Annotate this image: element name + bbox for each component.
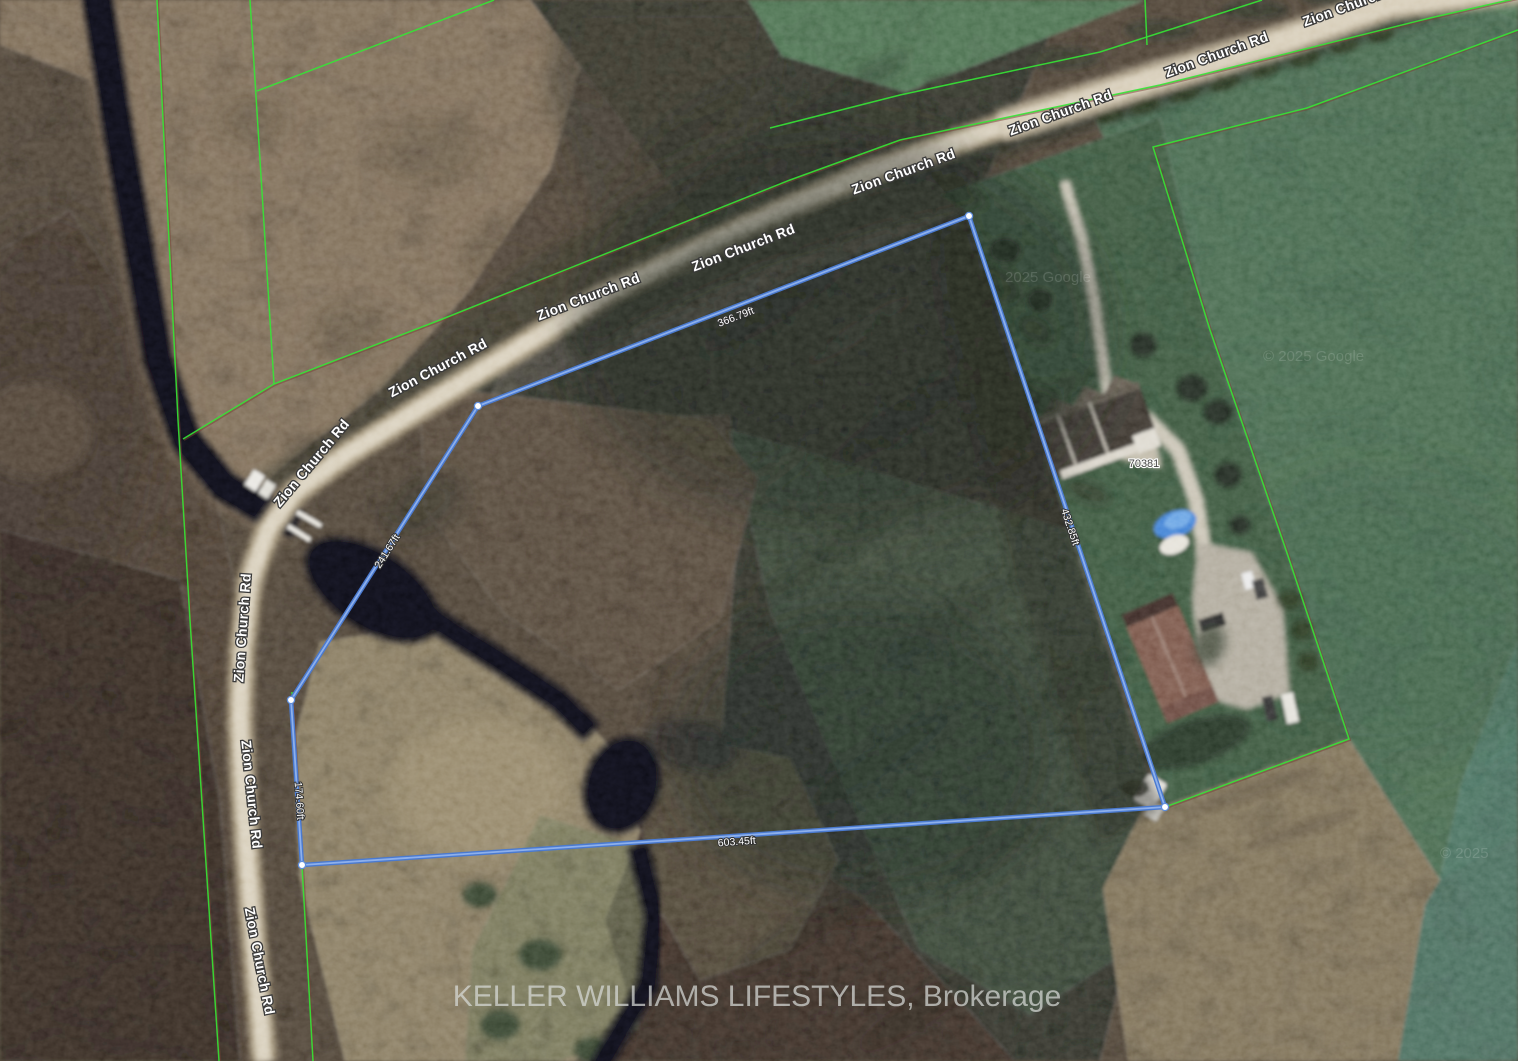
svg-text:KELLER WILLIAMS LIFESTYLES, Br: KELLER WILLIAMS LIFESTYLES, Brokerage [453,980,1062,1013]
svg-text:70381: 70381 [1129,458,1160,470]
svg-text:© 2025 Google: © 2025 Google [1263,348,1364,365]
svg-text:© 2025: © 2025 [1440,845,1489,862]
svg-text:2025 Google: 2025 Google [1005,269,1091,286]
